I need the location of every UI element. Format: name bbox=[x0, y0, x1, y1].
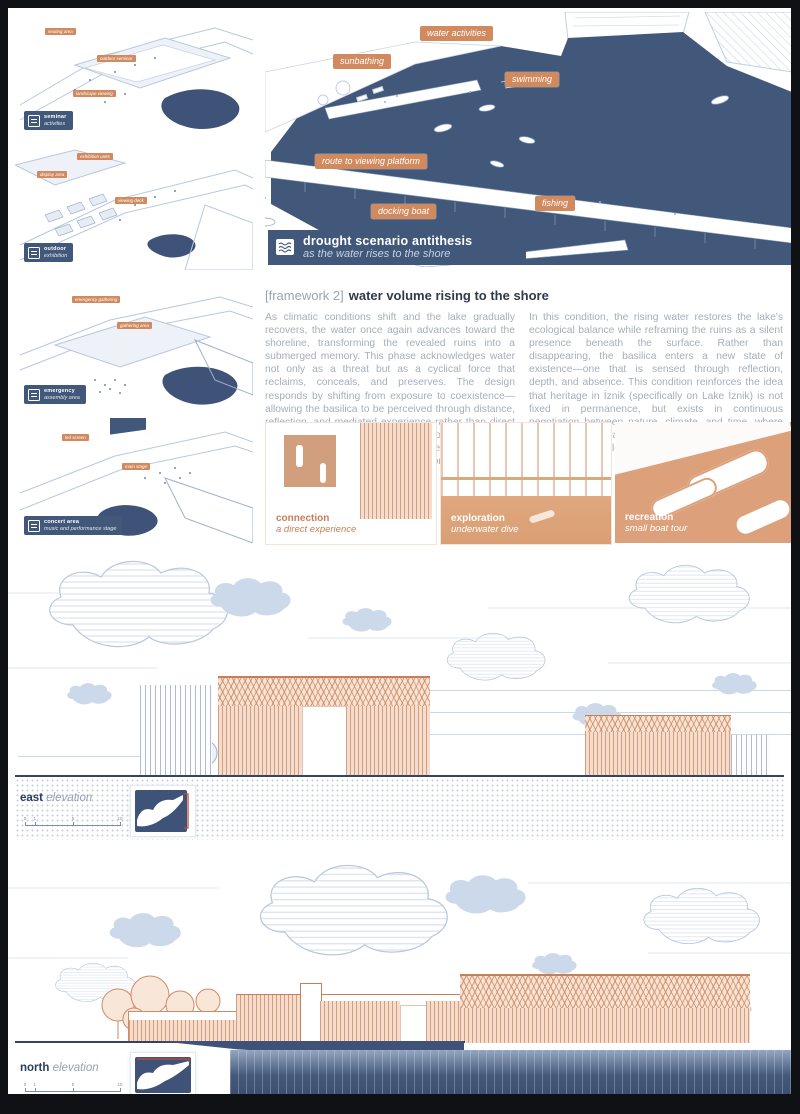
doorway-shape bbox=[284, 435, 336, 487]
guide-line bbox=[18, 756, 148, 757]
slat-wall bbox=[460, 1008, 750, 1043]
slat-wall bbox=[129, 1020, 241, 1042]
lake-key-map bbox=[131, 1053, 195, 1094]
slat-wall bbox=[236, 995, 300, 1042]
mini-tag: led screen bbox=[62, 434, 89, 441]
lattice-band bbox=[218, 678, 430, 706]
elevation-word: elevation bbox=[46, 792, 92, 804]
scenario-badge: concert areamusic and performance stage bbox=[24, 516, 122, 535]
north-left-building bbox=[128, 1011, 242, 1043]
north-water-body bbox=[230, 1050, 791, 1094]
mini-tag: gathering area bbox=[117, 322, 152, 329]
waves-icon bbox=[276, 239, 294, 255]
activity-tag: sunbathing bbox=[333, 54, 391, 69]
scale-tick: 0 bbox=[24, 1082, 27, 1087]
banner-title: drought scenario antithesis bbox=[303, 234, 472, 248]
slat-wall bbox=[426, 1001, 460, 1042]
scale-tick: 1 bbox=[33, 816, 36, 821]
main-axonometric-diagram[interactable]: water activities sunbathing swimming rou… bbox=[265, 12, 791, 267]
experience-title: recreation bbox=[625, 512, 687, 523]
mini-tag: main stage bbox=[122, 463, 150, 470]
east-key-map[interactable] bbox=[130, 785, 196, 837]
lattice-band bbox=[585, 716, 731, 732]
badge-subtitle: activities bbox=[44, 121, 67, 128]
column-texture bbox=[441, 423, 611, 497]
slat-wall bbox=[320, 1001, 400, 1042]
opening bbox=[400, 1005, 428, 1042]
north-mid-buildings bbox=[236, 994, 460, 1042]
east-fence bbox=[140, 685, 212, 775]
elevation-name: east bbox=[20, 792, 43, 804]
guide-line bbox=[428, 712, 791, 713]
experience-subtitle: a direct experience bbox=[276, 524, 356, 535]
elevation-name: north bbox=[20, 1062, 49, 1074]
framework-prefix: [framework 2] bbox=[265, 288, 344, 303]
east-annex bbox=[731, 735, 771, 775]
colonnade-texture bbox=[360, 423, 432, 519]
scale-tick: 5 bbox=[72, 816, 75, 821]
scenario-badge: seminaractivities bbox=[24, 111, 73, 130]
experience-thumb-connection[interactable]: connection a direct experience bbox=[265, 422, 437, 545]
scale-tick: 10 bbox=[117, 816, 122, 821]
figure-silhouette bbox=[296, 445, 303, 467]
experience-title: exploration bbox=[451, 513, 519, 524]
scenario-thumb-2[interactable]: exhibition units display area viewing de… bbox=[15, 145, 253, 270]
mini-tag: emergency gathering bbox=[72, 296, 120, 303]
mini-tag: outdoor seminar bbox=[97, 55, 136, 62]
boat-shape bbox=[734, 497, 791, 536]
figure-silhouette bbox=[320, 463, 326, 483]
badge-subtitle: music and performance stage bbox=[44, 526, 116, 533]
north-scale-bar: 0 1 5 10 bbox=[25, 1082, 121, 1094]
scenario-thumb-3[interactable]: emergency gathering gathering area emerg… bbox=[15, 285, 253, 412]
slat-wall bbox=[218, 706, 302, 777]
east-ground-line bbox=[15, 775, 784, 777]
experience-subtitle: underwater dive bbox=[451, 524, 519, 535]
activity-icon bbox=[28, 520, 40, 532]
deck-line bbox=[441, 477, 611, 480]
scale-tick: 1 bbox=[33, 1082, 36, 1087]
badge-subtitle: assembly area bbox=[44, 395, 80, 402]
mini-tag: landscape viewing bbox=[73, 90, 116, 97]
activity-tag: fishing bbox=[535, 196, 575, 211]
activity-tag: docking boat bbox=[371, 204, 436, 219]
north-elevation-label: north elevation bbox=[20, 1062, 99, 1074]
activity-icon bbox=[28, 247, 40, 259]
experience-thumb-recreation[interactable]: recreation small boat tour bbox=[615, 422, 791, 543]
experience-subtitle: small boat tour bbox=[625, 523, 687, 534]
experience-thumb-exploration[interactable]: exploration underwater dive bbox=[440, 422, 612, 545]
tower-volume bbox=[300, 983, 322, 1042]
mini-tag: exhibition units bbox=[77, 153, 113, 160]
east-side-building bbox=[585, 715, 731, 776]
north-key-map[interactable] bbox=[130, 1052, 196, 1094]
east-main-building bbox=[218, 676, 430, 777]
east-scale-bar: 0 1 5 10 bbox=[25, 816, 121, 828]
elevation-word: elevation bbox=[53, 1062, 99, 1074]
scenario-banner: drought scenario antithesis as the water… bbox=[268, 230, 526, 265]
activity-tag: route to viewing platform bbox=[315, 154, 427, 169]
scale-tick: 5 bbox=[72, 1082, 75, 1087]
entrance-opening bbox=[302, 706, 348, 777]
scale-tick: 10 bbox=[117, 1082, 122, 1087]
scenario-thumb-4[interactable]: led screen main stage concert areamusic … bbox=[15, 418, 253, 543]
activity-tag: swimming bbox=[505, 72, 559, 87]
banner-subtitle: as the water rises to the shore bbox=[303, 248, 472, 260]
mini-tag: seating area bbox=[45, 28, 76, 35]
guide-line bbox=[428, 690, 791, 691]
lattice-band bbox=[460, 976, 750, 1008]
scenario-badge: emergencyassembly area bbox=[24, 385, 86, 404]
mini-tag: display area bbox=[37, 171, 67, 178]
slat-wall bbox=[346, 706, 430, 777]
framework-title: water volume rising to the shore bbox=[349, 288, 549, 303]
activity-icon bbox=[28, 389, 40, 401]
scenario-thumb-1[interactable]: seating area outdoor seminar landscape v… bbox=[15, 10, 253, 138]
slat-wall bbox=[585, 732, 731, 776]
experience-label: connection a direct experience bbox=[276, 513, 356, 535]
lake-key-map bbox=[131, 786, 195, 836]
presentation-board: seating area outdoor seminar landscape v… bbox=[8, 8, 791, 1094]
pier-piles-texture bbox=[230, 1050, 791, 1094]
experience-label: recreation small boat tour bbox=[625, 512, 687, 534]
badge-subtitle: exhibition bbox=[44, 253, 67, 260]
activity-icon bbox=[28, 115, 40, 127]
lake-axonometric bbox=[265, 12, 791, 267]
experience-title: connection bbox=[276, 513, 356, 524]
north-right-building bbox=[460, 974, 750, 1043]
east-elevation-label: east elevation bbox=[20, 792, 92, 804]
mini-tag: viewing deck bbox=[115, 197, 147, 204]
framework-heading: [framework 2]water volume rising to the … bbox=[265, 288, 549, 303]
scenario-badge: outdoorexhibition bbox=[24, 243, 73, 262]
experience-label: exploration underwater dive bbox=[451, 513, 519, 535]
scale-tick: 0 bbox=[24, 816, 27, 821]
activity-tag: water activities bbox=[420, 26, 493, 41]
